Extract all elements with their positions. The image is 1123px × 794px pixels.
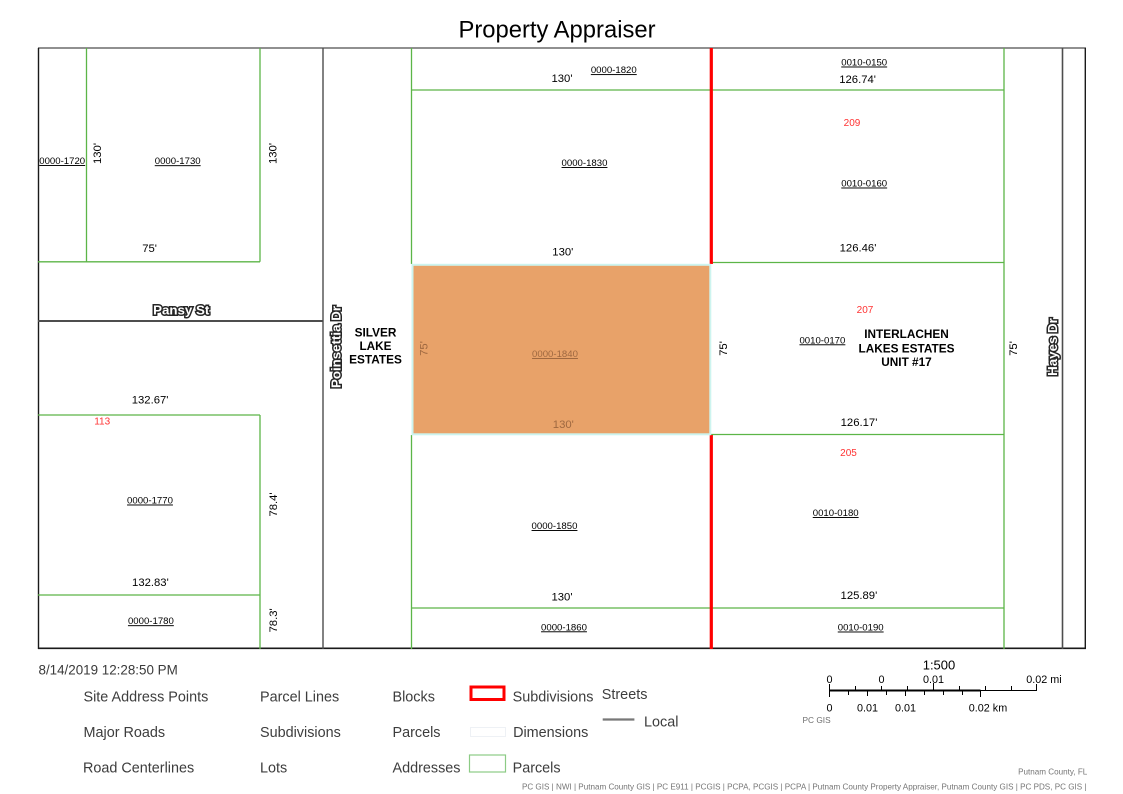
svg-text:130': 130' xyxy=(553,419,574,431)
svg-text:Site Address Points: Site Address Points xyxy=(84,690,209,706)
svg-text:Major Roads: Major Roads xyxy=(84,725,166,741)
svg-text:Parcels: Parcels xyxy=(393,725,441,741)
svg-text:207: 207 xyxy=(857,305,874,316)
svg-text:INTERLACHEN: INTERLACHEN xyxy=(864,327,949,341)
svg-text:Local: Local xyxy=(644,715,678,731)
svg-text:Hayes Dr: Hayes Dr xyxy=(1045,318,1060,376)
svg-text:209: 209 xyxy=(844,118,861,129)
svg-text:Dimensions: Dimensions xyxy=(513,725,588,741)
svg-text:Poinsettia Dr: Poinsettia Dr xyxy=(328,306,343,388)
svg-text:0000-1860: 0000-1860 xyxy=(541,622,587,633)
svg-text:Pansy St: Pansy St xyxy=(153,303,210,318)
svg-text:130': 130' xyxy=(551,73,572,85)
svg-text:UNIT #17: UNIT #17 xyxy=(881,355,932,369)
svg-text:PC GIS | NWI | Putnam County G: PC GIS | NWI | Putnam County GIS | PC E9… xyxy=(522,783,1087,792)
svg-text:LAKE: LAKE xyxy=(359,339,391,353)
svg-text:0.02 mi: 0.02 mi xyxy=(1026,674,1061,686)
svg-text:0000-1720: 0000-1720 xyxy=(39,156,85,167)
svg-text:132.67': 132.67' xyxy=(132,395,169,407)
svg-text:130': 130' xyxy=(551,592,572,604)
svg-text:8/14/2019 12:28:50 PM: 8/14/2019 12:28:50 PM xyxy=(39,663,178,678)
svg-text:0.01: 0.01 xyxy=(857,703,878,715)
svg-text:0.01: 0.01 xyxy=(895,703,916,715)
svg-text:75': 75' xyxy=(1008,341,1020,356)
svg-text:113: 113 xyxy=(94,417,110,428)
svg-text:0000-1830: 0000-1830 xyxy=(562,158,608,169)
svg-text:Addresses: Addresses xyxy=(393,761,461,777)
svg-text:125.89': 125.89' xyxy=(841,590,878,602)
svg-text:Property Appraiser: Property Appraiser xyxy=(458,17,655,44)
svg-text:205: 205 xyxy=(840,448,857,459)
svg-text:ESTATES: ESTATES xyxy=(349,352,402,366)
svg-text:Putnam County, FL: Putnam County, FL xyxy=(1018,768,1088,777)
svg-text:130': 130' xyxy=(268,143,280,164)
svg-text:Subdivisions: Subdivisions xyxy=(513,690,594,706)
svg-text:Road Centerlines: Road Centerlines xyxy=(83,761,194,777)
svg-text:SILVER: SILVER xyxy=(355,325,397,339)
svg-text:126.17': 126.17' xyxy=(841,417,878,429)
svg-text:Parcels: Parcels xyxy=(513,761,561,777)
svg-text:Streets: Streets xyxy=(602,687,648,703)
svg-text:132.83': 132.83' xyxy=(132,577,169,589)
svg-text:0010-0150: 0010-0150 xyxy=(841,58,887,69)
svg-text:0010-0170: 0010-0170 xyxy=(799,335,845,346)
svg-text:130': 130' xyxy=(92,143,104,164)
svg-text:0.02 km: 0.02 km xyxy=(969,703,1007,715)
svg-text:75': 75' xyxy=(142,243,157,255)
svg-text:0000-1840: 0000-1840 xyxy=(532,349,578,360)
svg-text:78.4': 78.4' xyxy=(268,492,280,516)
svg-text:0: 0 xyxy=(878,674,884,686)
svg-text:78.3': 78.3' xyxy=(268,608,280,632)
svg-text:Blocks: Blocks xyxy=(393,690,435,706)
svg-text:Parcel Lines: Parcel Lines xyxy=(260,690,339,706)
svg-text:75': 75' xyxy=(718,341,730,356)
svg-text:0000-1850: 0000-1850 xyxy=(532,521,578,532)
svg-text:126.74': 126.74' xyxy=(839,74,876,86)
svg-text:1:500: 1:500 xyxy=(923,658,956,673)
svg-text:0010-0160: 0010-0160 xyxy=(841,179,887,190)
svg-text:0010-0180: 0010-0180 xyxy=(813,508,859,519)
svg-text:0000-1730: 0000-1730 xyxy=(155,156,201,167)
svg-text:Lots: Lots xyxy=(260,761,287,777)
svg-text:0000-1770: 0000-1770 xyxy=(127,496,173,507)
svg-text:130': 130' xyxy=(552,246,573,258)
svg-text:LAKES ESTATES: LAKES ESTATES xyxy=(859,341,955,355)
svg-text:0: 0 xyxy=(826,703,832,715)
svg-text:PC GIS: PC GIS xyxy=(803,715,832,725)
svg-text:75': 75' xyxy=(419,341,431,356)
svg-text:0000-1780: 0000-1780 xyxy=(128,616,174,627)
svg-text:0010-0190: 0010-0190 xyxy=(838,623,884,634)
svg-text:0000-1820: 0000-1820 xyxy=(591,65,637,76)
svg-text:Subdivisions: Subdivisions xyxy=(260,725,341,741)
svg-text:126.46': 126.46' xyxy=(840,243,877,255)
